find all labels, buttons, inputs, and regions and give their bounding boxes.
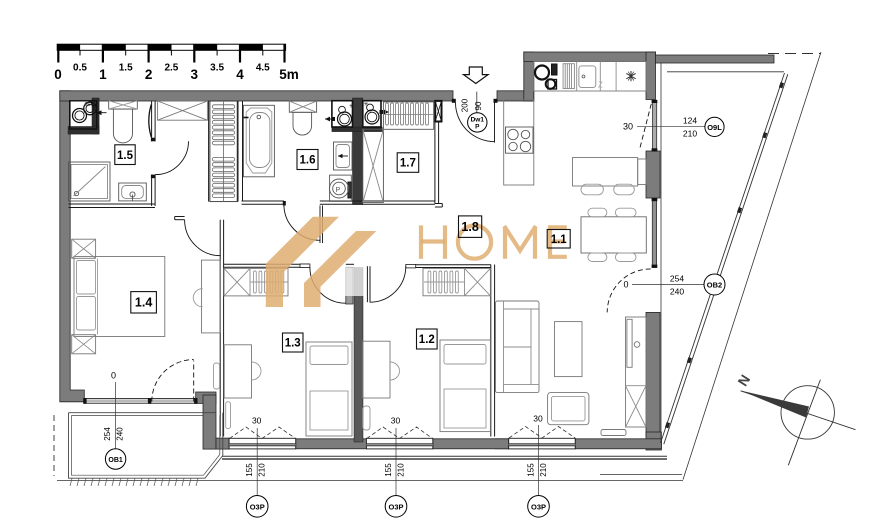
svg-text:3.5: 3.5 [210,63,224,74]
svg-text:30: 30 [391,416,401,426]
svg-text:155: 155 [526,463,535,477]
svg-text:1.1: 1.1 [551,234,568,246]
svg-text:3: 3 [191,67,199,82]
svg-text:124: 124 [683,116,697,126]
svg-text:254: 254 [670,274,684,284]
svg-text:0: 0 [623,280,628,290]
svg-text:0: 0 [54,67,62,82]
svg-text:200: 200 [461,98,470,112]
svg-text:210: 210 [539,463,548,477]
svg-text:P: P [475,124,480,131]
svg-text:O9L: O9L [707,123,722,132]
svg-text:1.5: 1.5 [119,63,133,74]
svg-text:1.7: 1.7 [400,158,416,170]
svg-text:4: 4 [236,67,244,82]
svg-text:O3P: O3P [531,502,546,511]
svg-text:90: 90 [474,101,483,110]
svg-text:5m: 5m [279,67,299,82]
svg-text:30: 30 [623,122,633,132]
svg-text:P: P [336,187,341,194]
svg-text:1: 1 [99,67,107,82]
svg-text:O3P: O3P [388,502,403,511]
svg-text:254: 254 [103,427,112,441]
svg-text:Dw1: Dw1 [471,117,485,124]
svg-text:99: 99 [85,102,91,108]
svg-text:✳: ✳ [364,101,369,108]
svg-text:Z: Z [598,81,603,90]
svg-text:OB2: OB2 [707,281,722,290]
svg-text:1.4: 1.4 [135,295,152,309]
svg-text:0.5: 0.5 [73,63,87,74]
svg-text:0: 0 [111,371,116,381]
svg-text:1.3: 1.3 [285,338,301,350]
svg-text:1.2: 1.2 [419,334,435,346]
svg-text:1.8: 1.8 [461,220,478,234]
svg-text:O3P: O3P [250,502,265,511]
svg-text:2: 2 [145,67,153,82]
svg-text:4.5: 4.5 [256,63,270,74]
svg-text:30: 30 [252,416,262,426]
svg-text:✳: ✳ [349,103,354,110]
svg-text:OB1: OB1 [108,457,123,464]
svg-text:1.6: 1.6 [300,155,316,167]
svg-text:210: 210 [683,129,697,139]
svg-text:210: 210 [258,463,267,477]
svg-text:2.5: 2.5 [164,63,178,74]
svg-text:240: 240 [670,287,684,297]
svg-text:240: 240 [116,427,125,441]
svg-text:210: 210 [396,463,405,477]
svg-text:155: 155 [384,463,393,477]
svg-text:30: 30 [533,414,543,424]
svg-text:155: 155 [245,463,254,477]
svg-text:1.5: 1.5 [117,150,134,162]
